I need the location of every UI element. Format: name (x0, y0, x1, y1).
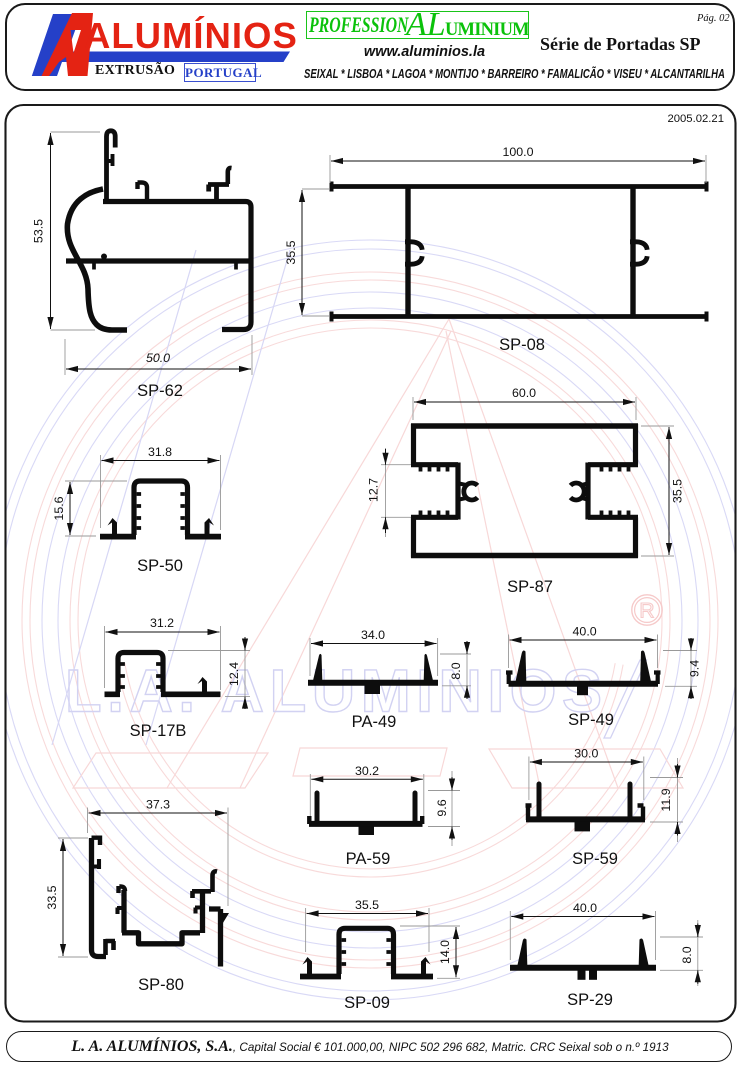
svg-text:34.0: 34.0 (361, 628, 385, 642)
svg-text:SP-50: SP-50 (137, 557, 183, 575)
svg-text:50.0: 50.0 (146, 351, 170, 365)
svg-text:12.4: 12.4 (227, 662, 241, 686)
svg-text:SP-80: SP-80 (138, 976, 184, 994)
svg-text:33.5: 33.5 (45, 885, 59, 909)
svg-text:37.3: 37.3 (146, 798, 170, 812)
svg-text:SP-62: SP-62 (137, 382, 183, 400)
svg-text:SP-59: SP-59 (572, 850, 618, 868)
svg-text:14.0: 14.0 (438, 940, 452, 964)
svg-text:8.0: 8.0 (449, 662, 463, 679)
svg-text:PA-59: PA-59 (346, 850, 391, 868)
svg-text:SP-49: SP-49 (568, 711, 614, 729)
svg-text:35.5: 35.5 (284, 240, 298, 264)
svg-text:12.7: 12.7 (367, 478, 381, 502)
svg-text:PA-49: PA-49 (352, 713, 397, 731)
svg-text:100.0: 100.0 (502, 145, 533, 159)
svg-text:35.5: 35.5 (671, 479, 685, 503)
svg-text:60.0: 60.0 (512, 386, 536, 400)
svg-text:31.8: 31.8 (148, 445, 172, 459)
svg-text:2005.02.21: 2005.02.21 (667, 113, 724, 125)
svg-text:15.6: 15.6 (52, 496, 66, 520)
svg-text:R: R (639, 600, 654, 623)
svg-text:40.0: 40.0 (573, 901, 597, 915)
svg-text:SP-29: SP-29 (567, 991, 613, 1009)
svg-text:8.0: 8.0 (680, 946, 694, 963)
svg-text:35.5: 35.5 (355, 898, 379, 912)
svg-text:9.4: 9.4 (688, 660, 702, 677)
svg-text:SP-08: SP-08 (499, 336, 545, 354)
svg-text:SP-17B: SP-17B (130, 722, 187, 740)
svg-text:SP-09: SP-09 (344, 994, 390, 1012)
svg-text:30.0: 30.0 (574, 747, 598, 761)
svg-text:9.6: 9.6 (435, 799, 449, 816)
svg-text:53.5: 53.5 (32, 219, 46, 243)
svg-text:40.0: 40.0 (573, 625, 597, 639)
svg-text:31.2: 31.2 (150, 616, 174, 630)
svg-text:SP-87: SP-87 (507, 578, 553, 596)
svg-text:11.9: 11.9 (659, 788, 673, 811)
svg-text:30.2: 30.2 (355, 764, 379, 778)
